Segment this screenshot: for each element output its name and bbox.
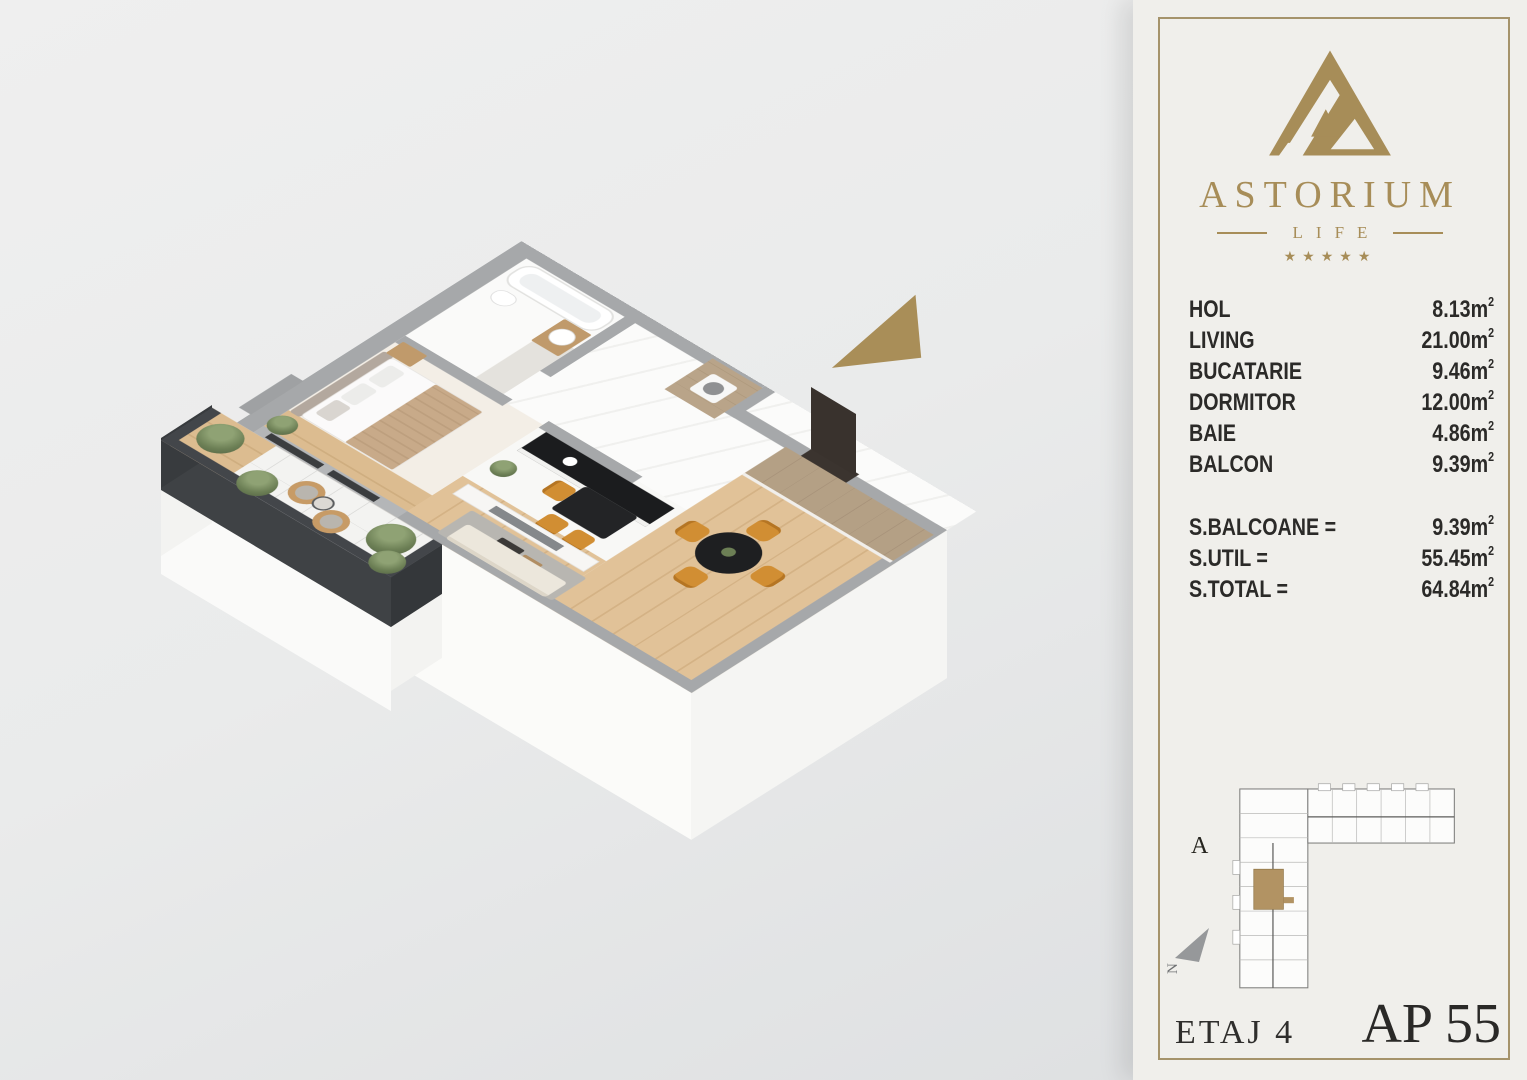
- site-plan-drawing: [1203, 782, 1465, 1000]
- brand-logo-triangle-icon: [1267, 48, 1393, 158]
- area-row-dormitor: DORMITOR 12.00m2: [1189, 387, 1494, 418]
- site-plan-highlighted-unit: [1254, 869, 1284, 909]
- brand-logo: ASTORIUM LIFE ★★★★★: [1133, 48, 1527, 265]
- floor-label: ETAJ 4: [1175, 1014, 1295, 1052]
- total-row-balcoane: S.BALCOANE = 9.39m2: [1189, 512, 1494, 543]
- area-row-hol: HOL 8.13m2: [1189, 294, 1494, 325]
- area-row-baie: BAIE 4.86m2: [1189, 418, 1494, 449]
- brand-dash-right: [1393, 232, 1443, 234]
- site-plan: [1203, 782, 1465, 1005]
- brand-subtitle: LIFE: [1280, 223, 1381, 243]
- area-row-balcon: BALCON 9.39m2: [1189, 449, 1494, 480]
- area-totals: S.BALCOANE = 9.39m2 S.UTIL = 55.45m2 S.T…: [1189, 512, 1494, 605]
- compass-letter: N: [1165, 963, 1181, 974]
- brand-dash-left: [1217, 232, 1267, 234]
- total-row-total: S.TOTAL = 64.84m2: [1189, 574, 1494, 605]
- total-row-util: S.UTIL = 55.45m2: [1189, 543, 1494, 574]
- brand-stars: ★★★★★: [1133, 248, 1527, 265]
- apartment-label: AP 55: [1361, 992, 1501, 1056]
- brand-name: ASTORIUM: [1133, 173, 1527, 217]
- area-row-bucatarie: BUCATARIE 9.46m2: [1189, 356, 1494, 387]
- info-panel: ASTORIUM LIFE ★★★★★ HOL 8.13m2 LIVING 21…: [1133, 0, 1527, 1080]
- entrance-arrow-icon: [830, 288, 925, 373]
- block-label: A: [1191, 833, 1208, 860]
- area-table: HOL 8.13m2 LIVING 21.00m2 BUCATARIE 9.46…: [1189, 294, 1494, 605]
- area-row-living: LIVING 21.00m2: [1189, 325, 1494, 356]
- north-arrow-icon: N: [1161, 916, 1225, 982]
